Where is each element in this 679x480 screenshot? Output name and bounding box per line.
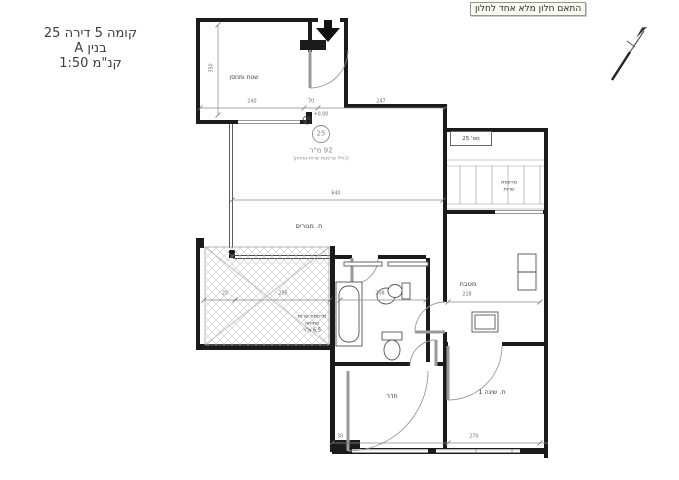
title-line-scale: קנ"מ 1:50 bbox=[28, 56, 153, 71]
entry-arrow-icon bbox=[316, 20, 340, 42]
dim-25: 25 bbox=[222, 293, 228, 298]
bathroom-fixtures bbox=[336, 262, 428, 360]
dimension-lines bbox=[198, 23, 549, 446]
dim-70: 70 bbox=[308, 101, 314, 106]
unit-number: 25 bbox=[317, 131, 326, 138]
room-label-open-balcony-1: מרפסת שרות bbox=[298, 315, 326, 320]
level-value: +0.00 bbox=[314, 114, 329, 119]
title-line-building: בנין A bbox=[28, 41, 153, 56]
dim-640: 640 bbox=[331, 193, 340, 198]
dim-270: 270 bbox=[469, 436, 478, 441]
window-walls bbox=[230, 124, 331, 259]
room-label-living: ח. מגורים bbox=[296, 223, 323, 230]
dim-240: 240 bbox=[247, 101, 256, 106]
room-label-bedroom: ח. שינה 1 bbox=[478, 389, 506, 396]
unit-number-box: מס' 25 bbox=[450, 131, 492, 146]
room-label-room: חדר bbox=[386, 393, 397, 400]
dim-208: 208 bbox=[375, 293, 384, 298]
dim-350: 350 bbox=[211, 63, 216, 72]
dim-218: 218 bbox=[462, 294, 471, 299]
north-arrow-icon bbox=[612, 27, 647, 80]
dim-205: 205 bbox=[278, 293, 287, 298]
room-label-storage: שטח ומחסן bbox=[229, 75, 258, 81]
unit-area-note: (כולל מרפסת שרות ומחסן) bbox=[293, 158, 349, 163]
room-label-service-balcony-1: מרפסת bbox=[501, 181, 517, 186]
room-label-open-balcony-3: 6.5 מ"ר bbox=[303, 329, 321, 334]
room-label-open-balcony-2: פתוחה bbox=[305, 322, 319, 327]
dim-30: 30 bbox=[337, 436, 343, 441]
floor-plan-sheet: קומה 5 דירה 25 בנין A קנ"מ 1:50 התאם חלו… bbox=[0, 0, 679, 480]
unit-area: 92 מ"ר bbox=[309, 148, 332, 155]
level-marker-icon bbox=[303, 116, 311, 124]
doors bbox=[309, 50, 503, 451]
room-label-service-balcony-2: שרות bbox=[503, 188, 514, 193]
title-block: קומה 5 דירה 25 בנין A קנ"מ 1:50 bbox=[28, 26, 153, 71]
drying-racks bbox=[447, 160, 544, 209]
floor-plan-drawing bbox=[0, 0, 679, 480]
title-line-floor: קומה 5 דירה 25 bbox=[28, 26, 153, 41]
dim-247: 247 bbox=[376, 101, 385, 106]
kitchen-fixtures bbox=[472, 254, 536, 332]
room-label-kitchen: מטבח bbox=[460, 281, 477, 288]
revision-note: התאם חלון מלא אחד לחלון bbox=[470, 2, 586, 16]
